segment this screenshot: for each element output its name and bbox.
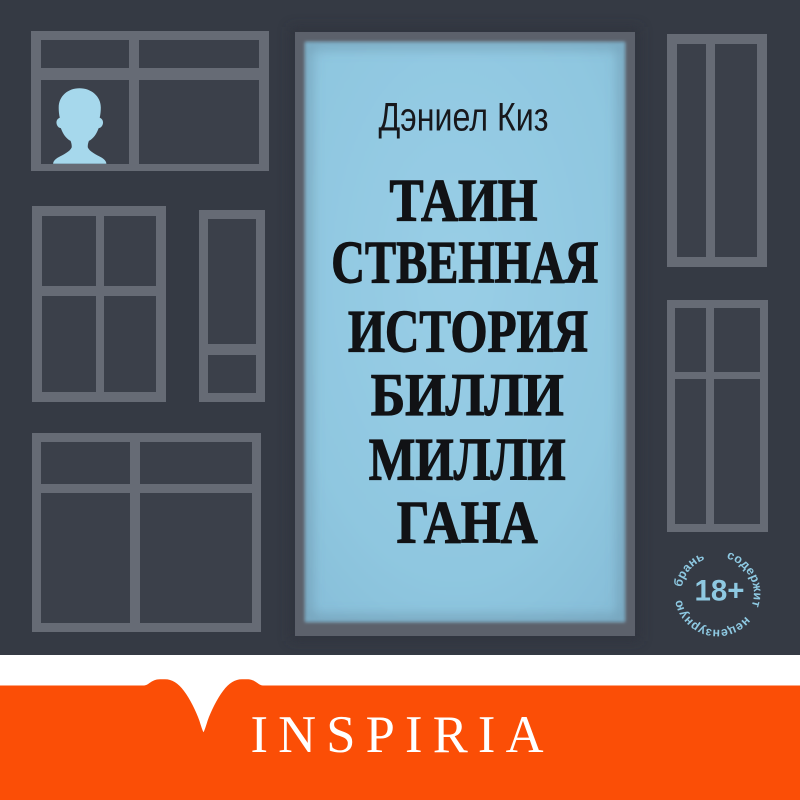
- svg-text:БИЛЛИ: БИЛЛИ: [371, 362, 564, 429]
- svg-text:МИЛЛИ: МИЛЛИ: [369, 426, 566, 493]
- svg-text:СТВЕННАЯ: СТВЕННАЯ: [331, 230, 598, 297]
- svg-text:ТАИН: ТАИН: [390, 168, 538, 235]
- svg-text:ИСТОРИЯ: ИСТОРИЯ: [348, 299, 588, 366]
- svg-text:ГАНА: ГАНА: [397, 489, 538, 556]
- svg-text:18+: 18+: [695, 575, 745, 608]
- svg-text:Дэниел Киз: Дэниел Киз: [379, 95, 549, 139]
- svg-text:INSPIRIA: INSPIRIA: [251, 706, 551, 764]
